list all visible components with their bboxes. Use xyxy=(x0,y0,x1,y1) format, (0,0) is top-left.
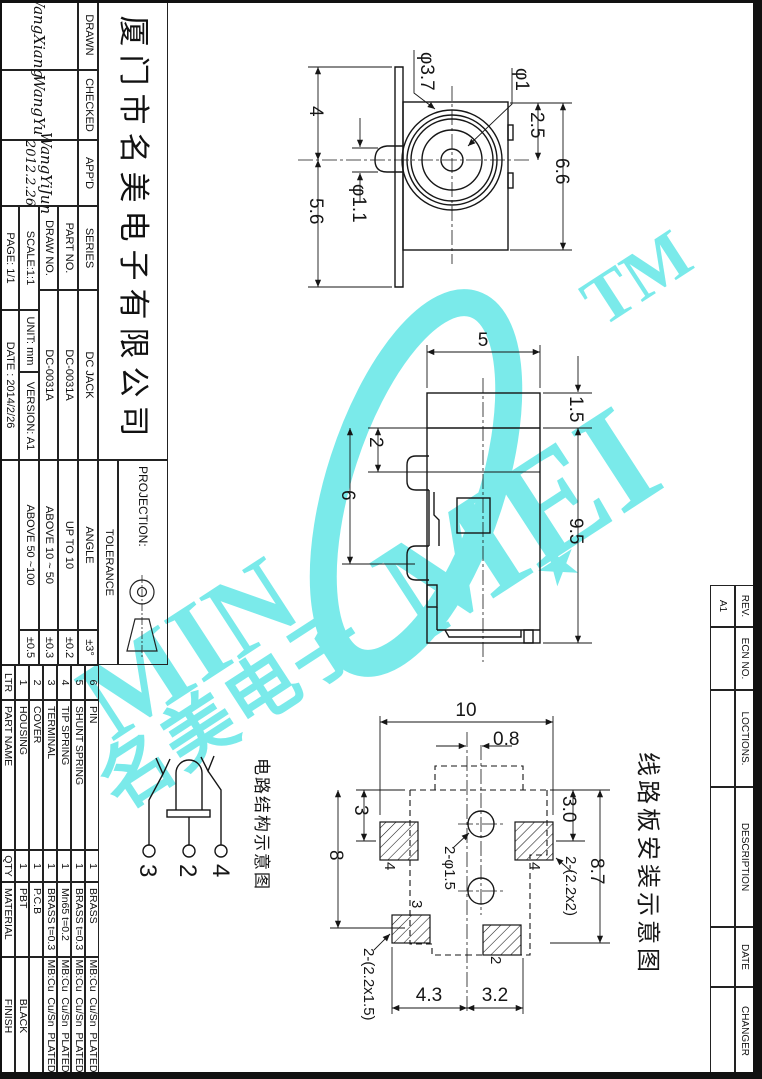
part-no-label: PART NO. xyxy=(58,206,78,290)
bom-cell: 1 xyxy=(57,850,71,882)
rev-date-label: DATE xyxy=(735,927,755,987)
locations-value xyxy=(710,690,735,787)
note-pads-bottom: 2-(2.2x1.5) xyxy=(360,948,377,1021)
bom-header-qty: QTY xyxy=(0,850,15,882)
dim-top-sec: 1.5 xyxy=(565,396,586,422)
approved-label: APP'D xyxy=(78,140,98,206)
drawn-label: DRAWN xyxy=(78,0,98,70)
bom-cell: BLACK xyxy=(15,957,29,1075)
description-value xyxy=(710,787,735,927)
part-no-value: DC-0031A xyxy=(58,290,78,460)
dim-top: 2.5 xyxy=(526,112,547,138)
dim-body: 9.5 xyxy=(565,518,586,544)
date-label: DATE : 2014/2/26 xyxy=(0,310,19,460)
tol-range-3: ABOVE 50 ~100 xyxy=(19,460,39,630)
title-block: 厦门市名美电子有限公司 DRAWN CHECKED APP'D WangXian… xyxy=(0,0,168,1075)
series-value: DC JACK xyxy=(78,290,98,460)
dim-pad-top: 3 xyxy=(350,805,371,816)
dim-bottom-left: 4.3 xyxy=(416,985,442,1006)
approved-signature: WangYiJun 2012.2.26 xyxy=(0,140,78,206)
scale-label: SCALE:1:1 xyxy=(19,206,39,310)
changer-value xyxy=(710,987,735,1075)
dim-pitch: 6 xyxy=(337,490,358,501)
description-label: DESCRIPTION xyxy=(735,787,755,927)
border-left xyxy=(0,0,2,1079)
bom-cell: 1 xyxy=(15,665,29,700)
tol-value-3: ±0.5 xyxy=(19,630,39,665)
tolerance-label: TOLERANCE xyxy=(98,460,118,665)
border-top xyxy=(0,0,762,3)
draw-no-label: DRAW NO. xyxy=(39,206,58,290)
bom-cell: BRASS t=0.3 xyxy=(71,882,85,957)
border-bottom xyxy=(0,1072,762,1079)
bom-cell: 4 xyxy=(57,665,71,700)
bom-header-material: MATERIAL xyxy=(0,882,15,957)
tol-value-1: ±0.2 xyxy=(58,630,78,665)
dim-pcb-width: 10 xyxy=(455,700,476,721)
dim-upper: 4 xyxy=(305,106,326,117)
note-pads-side: 2-(2.2x2) xyxy=(562,856,579,916)
bom-cell: TIP SPRING xyxy=(57,700,71,850)
dim-dia-shaft: φ1.1 xyxy=(348,184,369,223)
unit-label: UNIT: mm xyxy=(19,310,39,372)
ecn-label: ECN NO. xyxy=(735,627,755,690)
dim-right-top: 3.0 xyxy=(558,796,579,822)
bom-cell: 1 xyxy=(85,850,99,882)
bom-cell: PBT xyxy=(15,882,29,957)
tol-range-1: UP TO 10 xyxy=(58,460,78,630)
checked-label: CHECKED xyxy=(78,70,98,140)
company-name: 厦门市名美电子有限公司 xyxy=(98,0,168,460)
terminal-4: 4 xyxy=(207,864,234,881)
bom-cell: Mn65 t=0.2 xyxy=(57,882,71,957)
approved-signature-name: WangYiJun xyxy=(38,132,56,214)
drawn-signature: WangXiang xyxy=(0,0,78,70)
rev-date-value xyxy=(710,927,735,987)
tol-empty xyxy=(0,460,19,665)
dim-offset: 0.8 xyxy=(493,729,519,750)
dim-dia-pin: φ1 xyxy=(511,68,532,91)
bom-cell: MB:Cu Cu/Sn PLATED xyxy=(43,957,57,1075)
bom-cell: 6 xyxy=(85,665,99,700)
draw-no-value: DC-0031A xyxy=(39,290,58,460)
bom-cell: 2 xyxy=(29,665,43,700)
bom-cell: MB:Cu Cu/Sn PLATED xyxy=(85,957,99,1075)
page-label: PAGE: 1/1 xyxy=(0,206,19,310)
terminal-2: 2 xyxy=(174,864,201,881)
bom-cell: MB:Cu Cu/Sn PLATED xyxy=(57,957,71,1075)
bom-cell: BRASS t=0.3 xyxy=(43,882,57,957)
bom-cell: 5 xyxy=(71,665,85,700)
tol-value-2: ±0.3 xyxy=(39,630,58,665)
pad-label-br: 2 xyxy=(487,956,504,964)
angle-label: ANGLE xyxy=(78,460,98,630)
revision-strip: REV. ECN NO. LOCTIONS. DESCRIPTION DATE … xyxy=(710,585,755,1075)
checked-signature: WangYu xyxy=(0,70,78,140)
ecn-value xyxy=(710,627,735,690)
bom-header-part-name: PART NAME xyxy=(0,700,15,850)
pad-label-bl: 3 xyxy=(408,900,425,908)
changer-label: CHANGER xyxy=(735,987,755,1075)
approved-signature-date: 2012.2.26 xyxy=(23,140,38,206)
dim-tab: 2 xyxy=(365,437,386,448)
bom-cell: P.C.B xyxy=(29,882,43,957)
dim-lower: 5.6 xyxy=(305,198,326,224)
bom-cell: PIN xyxy=(85,700,99,850)
dim-left: 8 xyxy=(325,850,346,861)
bom-cell: MB:Cu Cu/Sn PLATED xyxy=(71,957,85,1075)
rev-label: REV. xyxy=(735,585,755,627)
bom-cell: TERMINAL xyxy=(43,700,57,850)
dim-dia-outer: φ3.7 xyxy=(416,52,437,91)
side-view: 5 1.5 9.5 2 6 xyxy=(337,330,592,662)
series-label: SERIES xyxy=(78,206,98,290)
circuit-caption: 电路结构示意图 xyxy=(252,758,271,891)
bom-header-ltr: LTR xyxy=(0,665,15,700)
drawing-sheet: MIN MEI 名美电子 ★ TM xyxy=(0,0,762,1079)
bom-cell: SHUNT SPRING xyxy=(71,700,85,850)
bom-cell xyxy=(29,957,43,1075)
bom-cell: HOUSING xyxy=(15,700,29,850)
dim-right: 8.7 xyxy=(586,858,607,884)
dim-height: 6.6 xyxy=(551,158,572,184)
angle-value: ±3° xyxy=(78,630,98,665)
pcb-view: 4 4 3 2 10 0.8 3 8 3.0 xyxy=(325,700,661,1021)
pcb-caption: 线路板安装示意图 xyxy=(634,752,661,976)
bom-cell: 1 xyxy=(43,850,57,882)
border-right xyxy=(753,0,762,1079)
bom-cell: BRASS xyxy=(85,882,99,957)
bom-cell: 1 xyxy=(15,850,29,882)
bom-cell: COVER xyxy=(29,700,43,850)
front-view: φ3.7 φ1 2.5 6.6 4 5.6 φ1.1 xyxy=(298,50,572,287)
bom-cell: 1 xyxy=(29,850,43,882)
bom-cell: 3 xyxy=(43,665,57,700)
pad-label-tr: 4 xyxy=(526,862,543,870)
dim-bottom-right: 3.2 xyxy=(482,985,508,1006)
projection-cell: PROJECTION: xyxy=(118,460,168,665)
note-holes: 2-φ1.5 xyxy=(441,846,458,890)
bom-header-finish: FINISH xyxy=(0,957,15,1075)
pad-label-tl: 4 xyxy=(381,862,398,870)
projection-label: PROJECTION: xyxy=(137,466,150,547)
bom-cell: 1 xyxy=(71,850,85,882)
dim-width: 5 xyxy=(478,330,489,351)
locations-label: LOCTIONS. xyxy=(735,690,755,787)
first-angle-projection-icon xyxy=(120,573,164,659)
tol-range-2: ABOVE 10 ~ 50 xyxy=(39,460,58,630)
rev-value: A1 xyxy=(710,585,735,627)
version-label: VERSION: A1 xyxy=(19,372,39,460)
